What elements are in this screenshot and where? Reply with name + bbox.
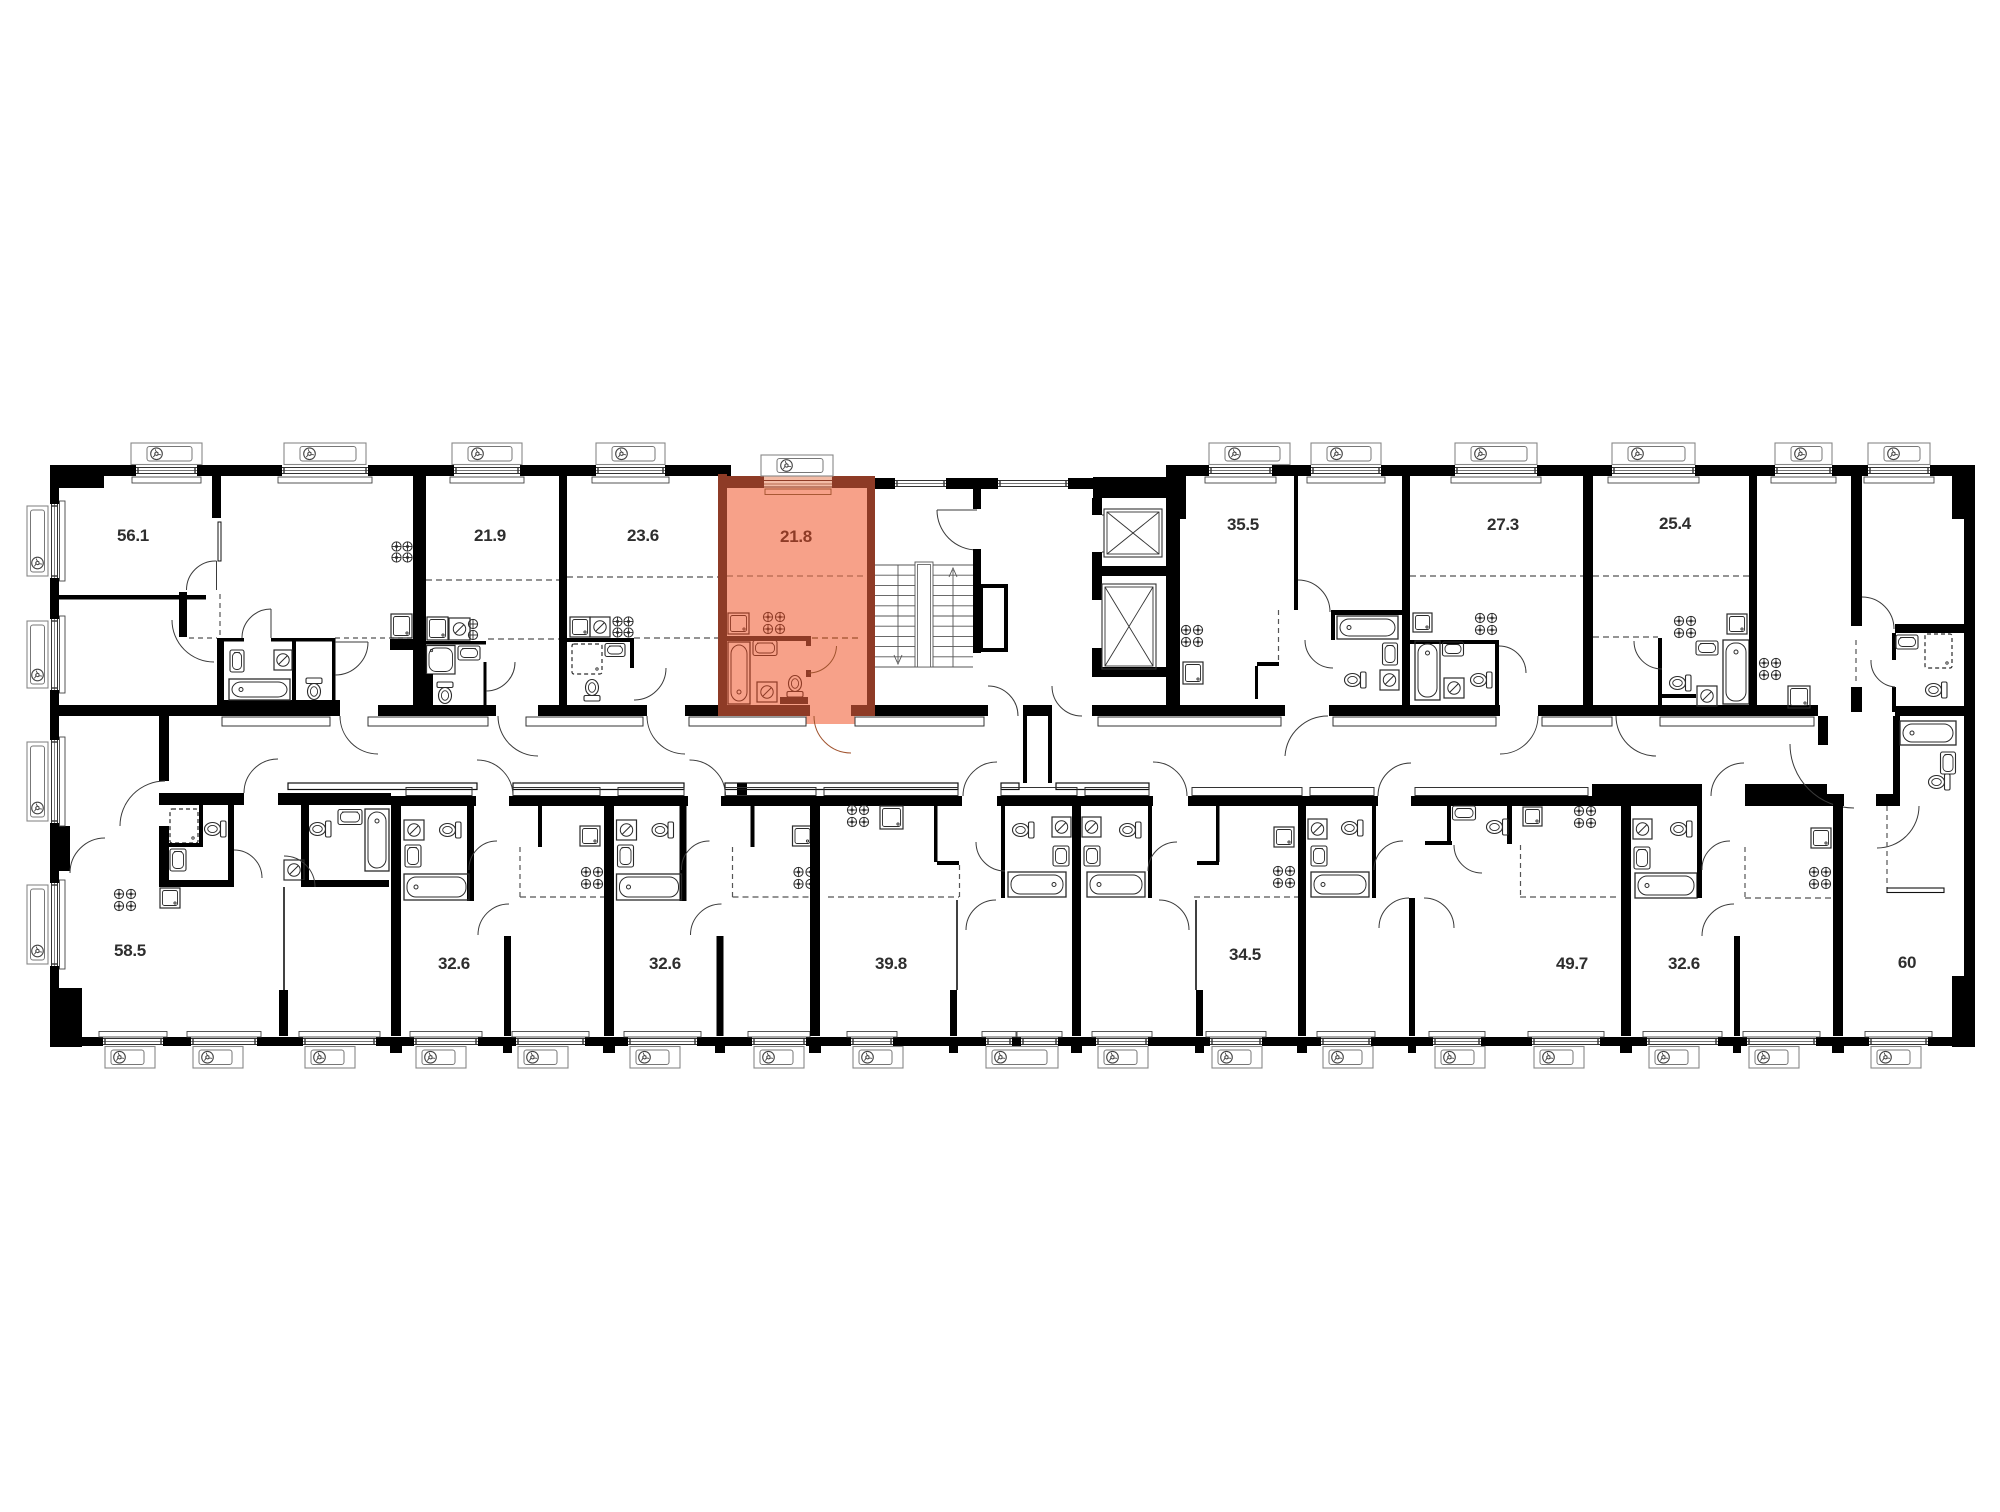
- svg-text:25.4: 25.4: [1659, 514, 1692, 533]
- svg-text:34.5: 34.5: [1229, 945, 1261, 964]
- svg-text:32.6: 32.6: [1668, 954, 1700, 973]
- svg-text:60: 60: [1898, 953, 1916, 972]
- svg-text:32.6: 32.6: [649, 954, 681, 973]
- svg-text:58.5: 58.5: [114, 941, 146, 960]
- svg-text:23.6: 23.6: [627, 526, 659, 545]
- svg-text:35.5: 35.5: [1227, 515, 1259, 534]
- svg-text:27.3: 27.3: [1487, 515, 1519, 534]
- svg-text:39.8: 39.8: [875, 954, 907, 973]
- svg-text:21.9: 21.9: [474, 526, 506, 545]
- svg-text:56.1: 56.1: [117, 526, 149, 545]
- svg-text:32.6: 32.6: [438, 954, 470, 973]
- svg-text:49.7: 49.7: [1556, 954, 1588, 973]
- svg-text:21.8: 21.8: [780, 527, 812, 546]
